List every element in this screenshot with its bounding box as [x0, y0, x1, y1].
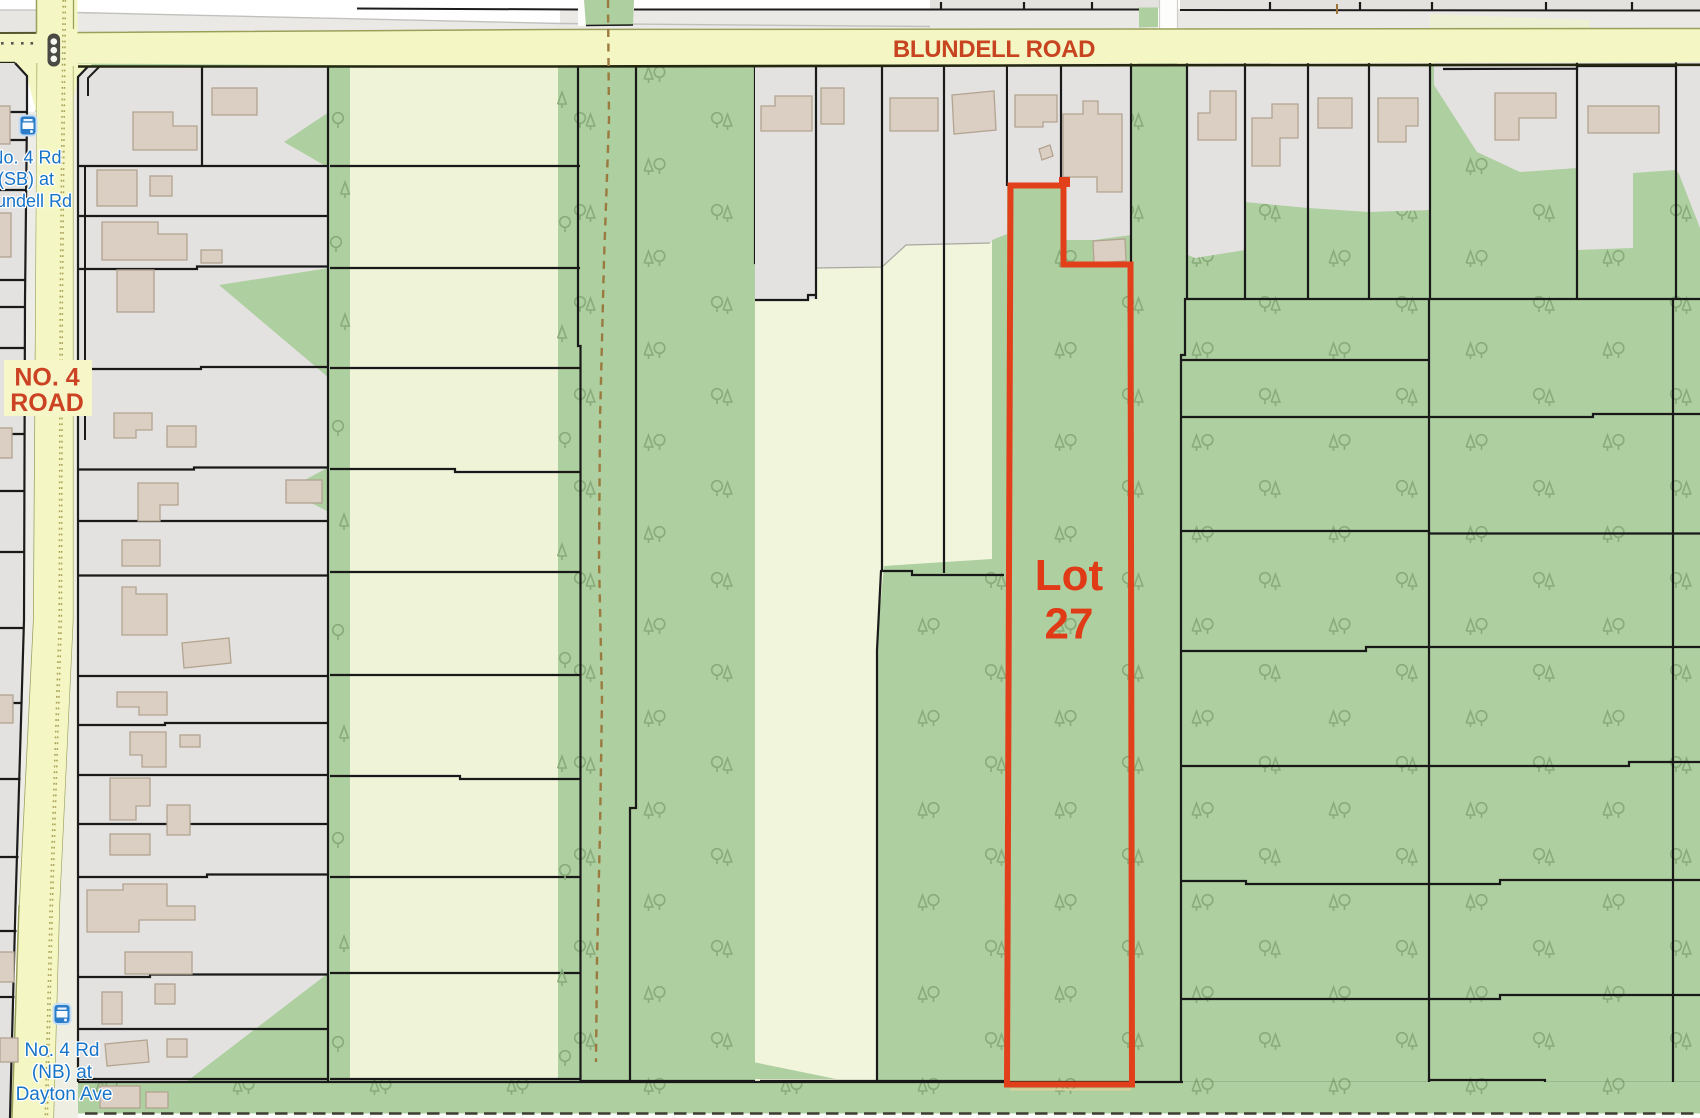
svg-text:NO. 4: NO. 4 — [14, 364, 79, 392]
svg-text:Blundell Rd: Blundell Rd — [0, 191, 72, 211]
svg-text:ROAD: ROAD — [10, 389, 84, 417]
svg-text:No. 4 Rd: No. 4 Rd — [0, 148, 62, 168]
svg-text:(NB) at: (NB) at — [32, 1062, 93, 1083]
svg-text:No. 4 Rd: No. 4 Rd — [25, 1040, 100, 1061]
svg-text:Lot: Lot — [1035, 551, 1104, 600]
svg-text:(SB) at: (SB) at — [0, 169, 54, 189]
svg-text:BLUNDELL ROAD: BLUNDELL ROAD — [893, 36, 1095, 63]
svg-text:27: 27 — [1045, 600, 1094, 649]
svg-text:Dayton Ave: Dayton Ave — [16, 1084, 113, 1105]
